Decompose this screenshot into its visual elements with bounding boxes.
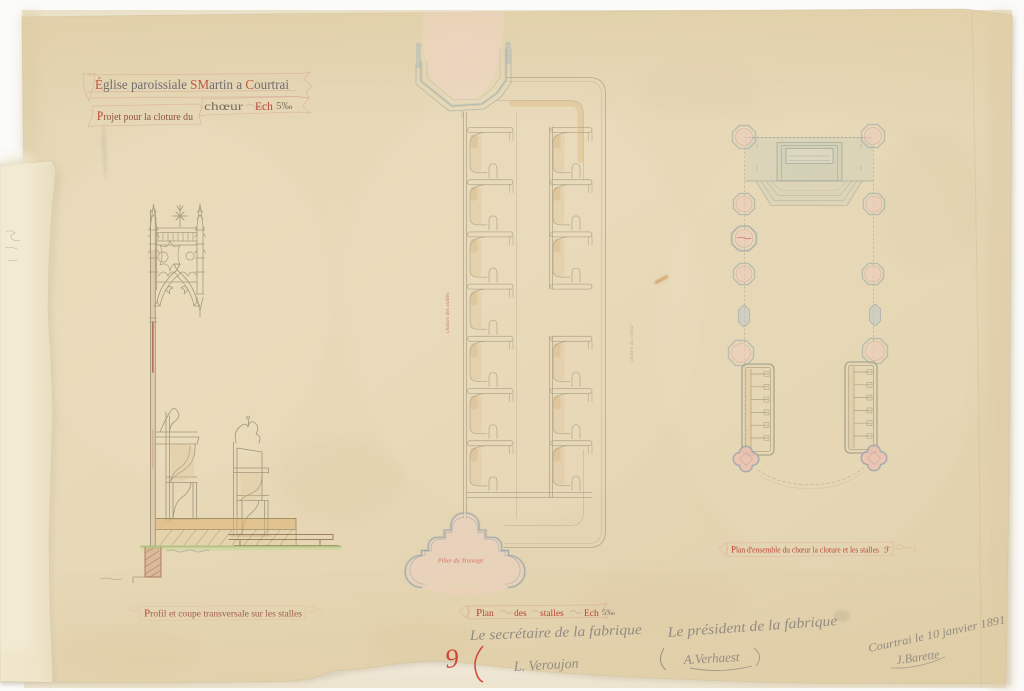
svg-text:ℱ: ℱ [884,546,891,555]
svg-text:Pilier du Transept: Pilier du Transept [437,559,483,565]
svg-text:Plan d'ensemble du chœur la cl: Plan d'ensemble du chœur la cloture et l… [731,546,879,556]
svg-text:5‰: 5‰ [602,607,615,617]
svg-text:Ech: Ech [255,101,273,113]
svg-text:A.Verhaest: A.Verhaest [682,649,740,667]
svg-text:Profil et coupe transversale s: Profil et coupe transversale sur les sta… [144,609,303,620]
svg-text:chaises des stalles: chaises des stalles [445,293,451,333]
svg-text:Ech: Ech [584,609,599,619]
svg-text:Projet pour la cloture du: Projet pour la cloture du [97,109,193,123]
svg-text:Plan: Plan [476,607,494,619]
svg-text:5‰: 5‰ [276,100,293,112]
svg-text:Église paroissiale SMartin a C: Église paroissiale SMartin a Courtrai [95,76,289,93]
svg-text:stalles: stalles [540,609,564,619]
svg-text:des: des [514,609,527,619]
svg-text:chœur: chœur [204,101,243,113]
svg-text:cloture du chœur: cloture du chœur [629,324,635,362]
